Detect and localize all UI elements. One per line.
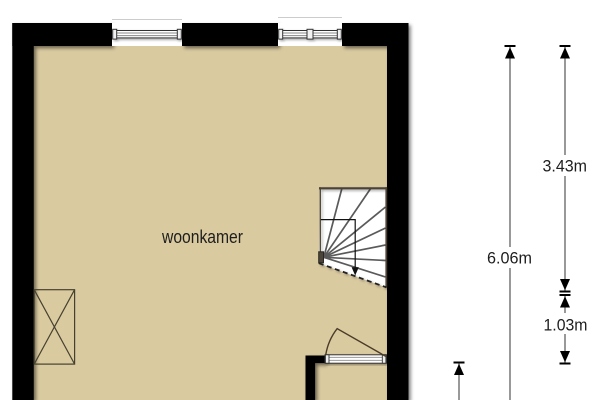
svg-text:3.43m: 3.43m (543, 157, 588, 176)
svg-text:1.03m: 1.03m (544, 316, 588, 335)
svg-text:woonkamer: woonkamer (161, 226, 243, 247)
svg-text:6.06m: 6.06m (487, 249, 532, 268)
